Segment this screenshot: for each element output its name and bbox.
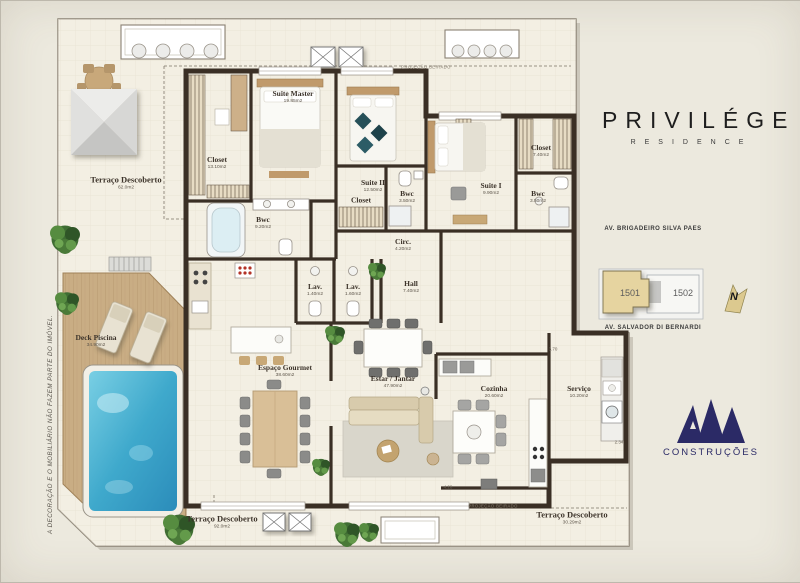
suite-2-bed (347, 87, 399, 161)
keyplan-street-top: AV. BRIGADEIRO SILVA PAES (573, 226, 733, 232)
builder-logo: CONSTRUÇÕES (663, 397, 759, 458)
keyplan-unit-1502: 1502 (673, 288, 693, 298)
keyplan-unit-1501: 1501 (620, 288, 640, 298)
pool (83, 365, 183, 517)
residence-logo: PRIVILÉGE RESIDENCE (594, 107, 780, 146)
builder-name: CONSTRUÇÕES (663, 447, 759, 458)
builder-logo-spacer (663, 397, 759, 445)
dimension-label: 2.34 (615, 440, 624, 445)
projection-caption-top: PROJEÇÃO BEIRADO (401, 65, 450, 70)
residence-logo-subtitle: RESIDENCE (603, 139, 780, 146)
residence-logo-title: PRIVILÉGE (602, 107, 780, 134)
floorplan-poster: Terraço Descoberto62.0m2 Closet13.10m2 S… (0, 0, 800, 583)
service-area-fixtures (601, 357, 623, 441)
deck-mat (109, 257, 151, 271)
dimension-label: 4.28 (444, 485, 453, 490)
projection-caption-bottom: PROJEÇÃO BEIRADO (468, 504, 517, 509)
keyplan-street-bottom: AV. SALVADOR DI BERNARDI (573, 325, 733, 331)
dimension-label: 3.70 (549, 347, 558, 352)
disclaimer-text: A DECORAÇÃO E O MOBILIÁRIO NÃO FAZEM PAR… (47, 288, 54, 534)
north-arrow-letter: N (730, 291, 738, 303)
pool-deck (63, 257, 186, 517)
